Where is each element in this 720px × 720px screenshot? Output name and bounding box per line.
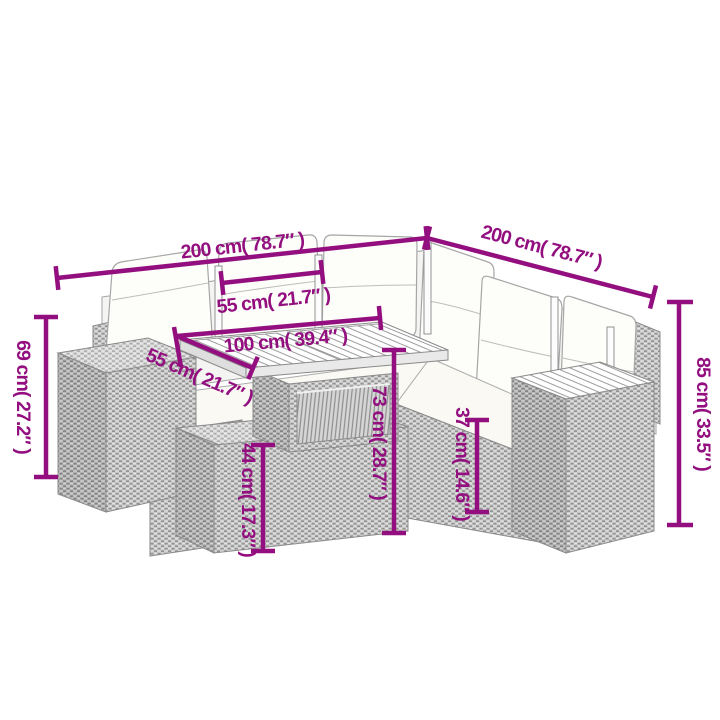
ottoman-left-face [58, 353, 106, 512]
dimension-ottoman-height: 69 cm( 27.2″ ) [12, 317, 58, 477]
dim-label-seat-height: 37 cm( 14.6″ ) [451, 407, 473, 521]
dimension-tick [650, 285, 656, 308]
backrest-post [424, 242, 431, 334]
coffee-table [176, 322, 448, 553]
table-base-left-face [176, 428, 214, 553]
dimension-tick [221, 271, 224, 295]
side-table-front-face [566, 382, 654, 553]
dimension-tick [321, 260, 324, 284]
dimension-diagram-canvas: 200 cm( 78.7″ ) 200 cm( 78.7″ ) 55 cm( 2… [0, 0, 720, 720]
dimension-tick [56, 266, 59, 290]
dimension-tick [379, 306, 381, 330]
side-table-left-face [512, 378, 566, 553]
backrest-post [551, 297, 558, 379]
product-dimension-image: 200 cm( 78.7″ ) 200 cm( 78.7″ ) 55 cm( 2… [0, 0, 720, 720]
right-side-table [512, 362, 654, 553]
dim-label-total-height: 85 cm( 33.5″ ) [692, 357, 714, 471]
dim-label-table-base-height: 44 cm( 17.3″ ) [237, 443, 259, 557]
dim-label-ottoman-height: 69 cm( 27.2″ ) [12, 340, 34, 454]
dimension-total-height: 85 cm( 33.5″ ) [667, 302, 714, 525]
dim-label-table-height: 73 cm( 28.7″ ) [368, 386, 390, 500]
